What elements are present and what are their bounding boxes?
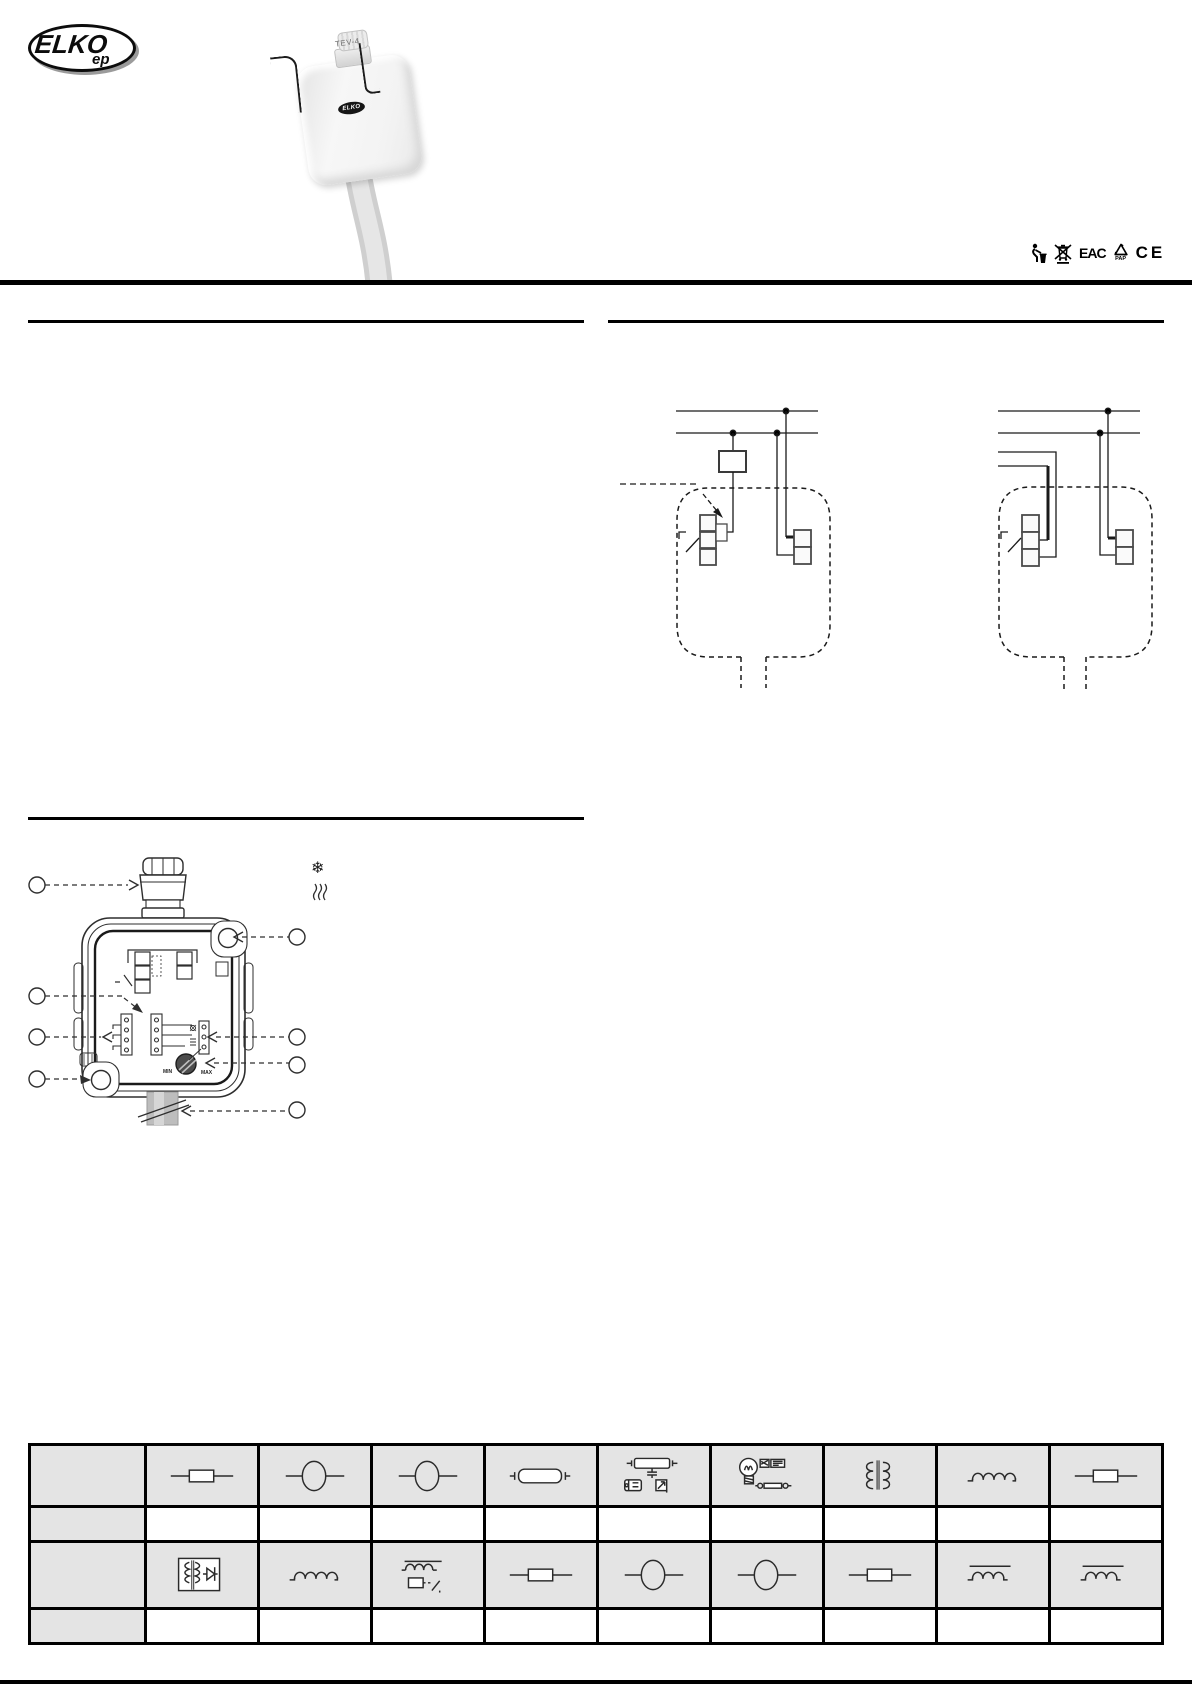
halogen-lamp-icon	[712, 1543, 822, 1607]
wiring-diagrams	[600, 395, 1192, 695]
eac-icon: EAC	[1079, 245, 1106, 261]
weee-crossed-bin-icon	[1054, 243, 1072, 264]
load-table-value-cell	[373, 1508, 483, 1540]
electronic-transformer-icon	[147, 1543, 257, 1607]
wiring-diagram-2	[998, 408, 1152, 690]
page-bottom-rule	[0, 1680, 1192, 1684]
load-table-value-cell	[938, 1508, 1048, 1540]
device-callout-arrow	[703, 494, 717, 511]
callout-5	[289, 929, 305, 945]
brand-sub: ep	[92, 51, 110, 68]
knob-max-label: MAX	[201, 1070, 213, 1076]
resistive-load-icon	[486, 1543, 596, 1607]
load-table-value-cell	[1051, 1610, 1161, 1642]
load-table-value-cell	[147, 1508, 257, 1540]
cable-gland	[140, 858, 186, 918]
inductive-load-overline-icon	[1051, 1543, 1161, 1607]
inductive-load-overline-icon	[938, 1543, 1048, 1607]
product-body	[294, 53, 424, 188]
incandescent-lamp-icon	[260, 1446, 370, 1505]
callout-1	[29, 877, 45, 893]
heat-waves-icon	[314, 884, 327, 900]
incandescent-lamp-icon	[599, 1543, 709, 1607]
relay-coil-load-icon	[373, 1543, 483, 1607]
load-table-value-cell	[712, 1508, 822, 1540]
callout-8	[289, 1102, 305, 1118]
right-section-rule	[608, 320, 1164, 323]
device-terminals-right	[1116, 530, 1133, 564]
callout-4	[29, 1071, 45, 1087]
load-table-label-cell	[31, 1446, 144, 1505]
callout-7	[289, 1057, 305, 1073]
ce-icon: CE	[1136, 243, 1166, 263]
compensated-fluorescent-lamp-icon	[599, 1446, 709, 1505]
callout-3	[29, 1029, 45, 1045]
recycle-triangle-icon	[1113, 243, 1129, 257]
load-table-value-cell	[373, 1610, 483, 1642]
inductive-load-icon	[938, 1446, 1048, 1505]
wound-transformer-icon	[825, 1446, 935, 1505]
load-table-label-cell	[31, 1543, 144, 1607]
load-table-value-cell	[486, 1508, 596, 1540]
load-table-value-cell	[599, 1610, 709, 1642]
device-description-figure: MIN MAX	[20, 852, 340, 1140]
load-table-value-cell	[938, 1610, 1048, 1642]
load-table-value-cell	[825, 1610, 935, 1642]
wiring-diagram-1	[620, 408, 830, 688]
sensor-switch-symbol	[679, 532, 699, 552]
sensor-switch-symbol	[1001, 532, 1021, 552]
device-terminals-left	[700, 515, 727, 565]
resistive-load-icon	[825, 1543, 935, 1607]
load-table-value-cell	[712, 1610, 822, 1642]
description-section-rule	[28, 817, 584, 820]
resistive-load-icon	[147, 1446, 257, 1505]
load-table-value-cell	[260, 1610, 370, 1642]
load-table-label-cell	[31, 1508, 144, 1540]
certification-icons: EAC PAP CE	[1030, 240, 1170, 266]
load-table-value-cell	[486, 1610, 596, 1642]
callout-6	[289, 1029, 305, 1045]
left-section-rule	[28, 320, 584, 323]
pap-recycle-icon: PAP	[1113, 243, 1129, 263]
resistive-load-icon	[1051, 1446, 1161, 1505]
load-table-value-cell	[1051, 1508, 1161, 1540]
load-table-value-cell	[147, 1610, 257, 1642]
halogen-lamp-icon	[373, 1446, 483, 1505]
load-table-value-cell	[599, 1508, 709, 1540]
load-table	[28, 1443, 1164, 1645]
callout-2	[29, 988, 45, 1004]
snowflake-icon: ❄	[311, 860, 324, 877]
tidy-man-icon	[1030, 243, 1047, 264]
load-table-value-cell	[825, 1508, 935, 1540]
load-table-label-cell	[31, 1610, 144, 1642]
product-photo: TEV-4 ELKO	[262, 16, 477, 284]
external-device-box	[719, 451, 746, 472]
header-rule	[0, 280, 1192, 285]
datasheet-page: ELKO ep TEV-4 ELKO	[0, 0, 1192, 1685]
device-terminals-left	[1022, 515, 1039, 566]
pap-label: PAP	[1115, 257, 1126, 263]
led-esl-lamp-icon	[712, 1446, 822, 1505]
knob-min-label: MIN	[163, 1069, 173, 1075]
fluorescent-tube-icon	[486, 1446, 596, 1505]
load-table-value-cell	[260, 1508, 370, 1540]
inductive-load-icon	[260, 1543, 370, 1607]
device-terminals-right	[794, 530, 811, 564]
elko-logo: ELKO ep	[28, 24, 136, 72]
